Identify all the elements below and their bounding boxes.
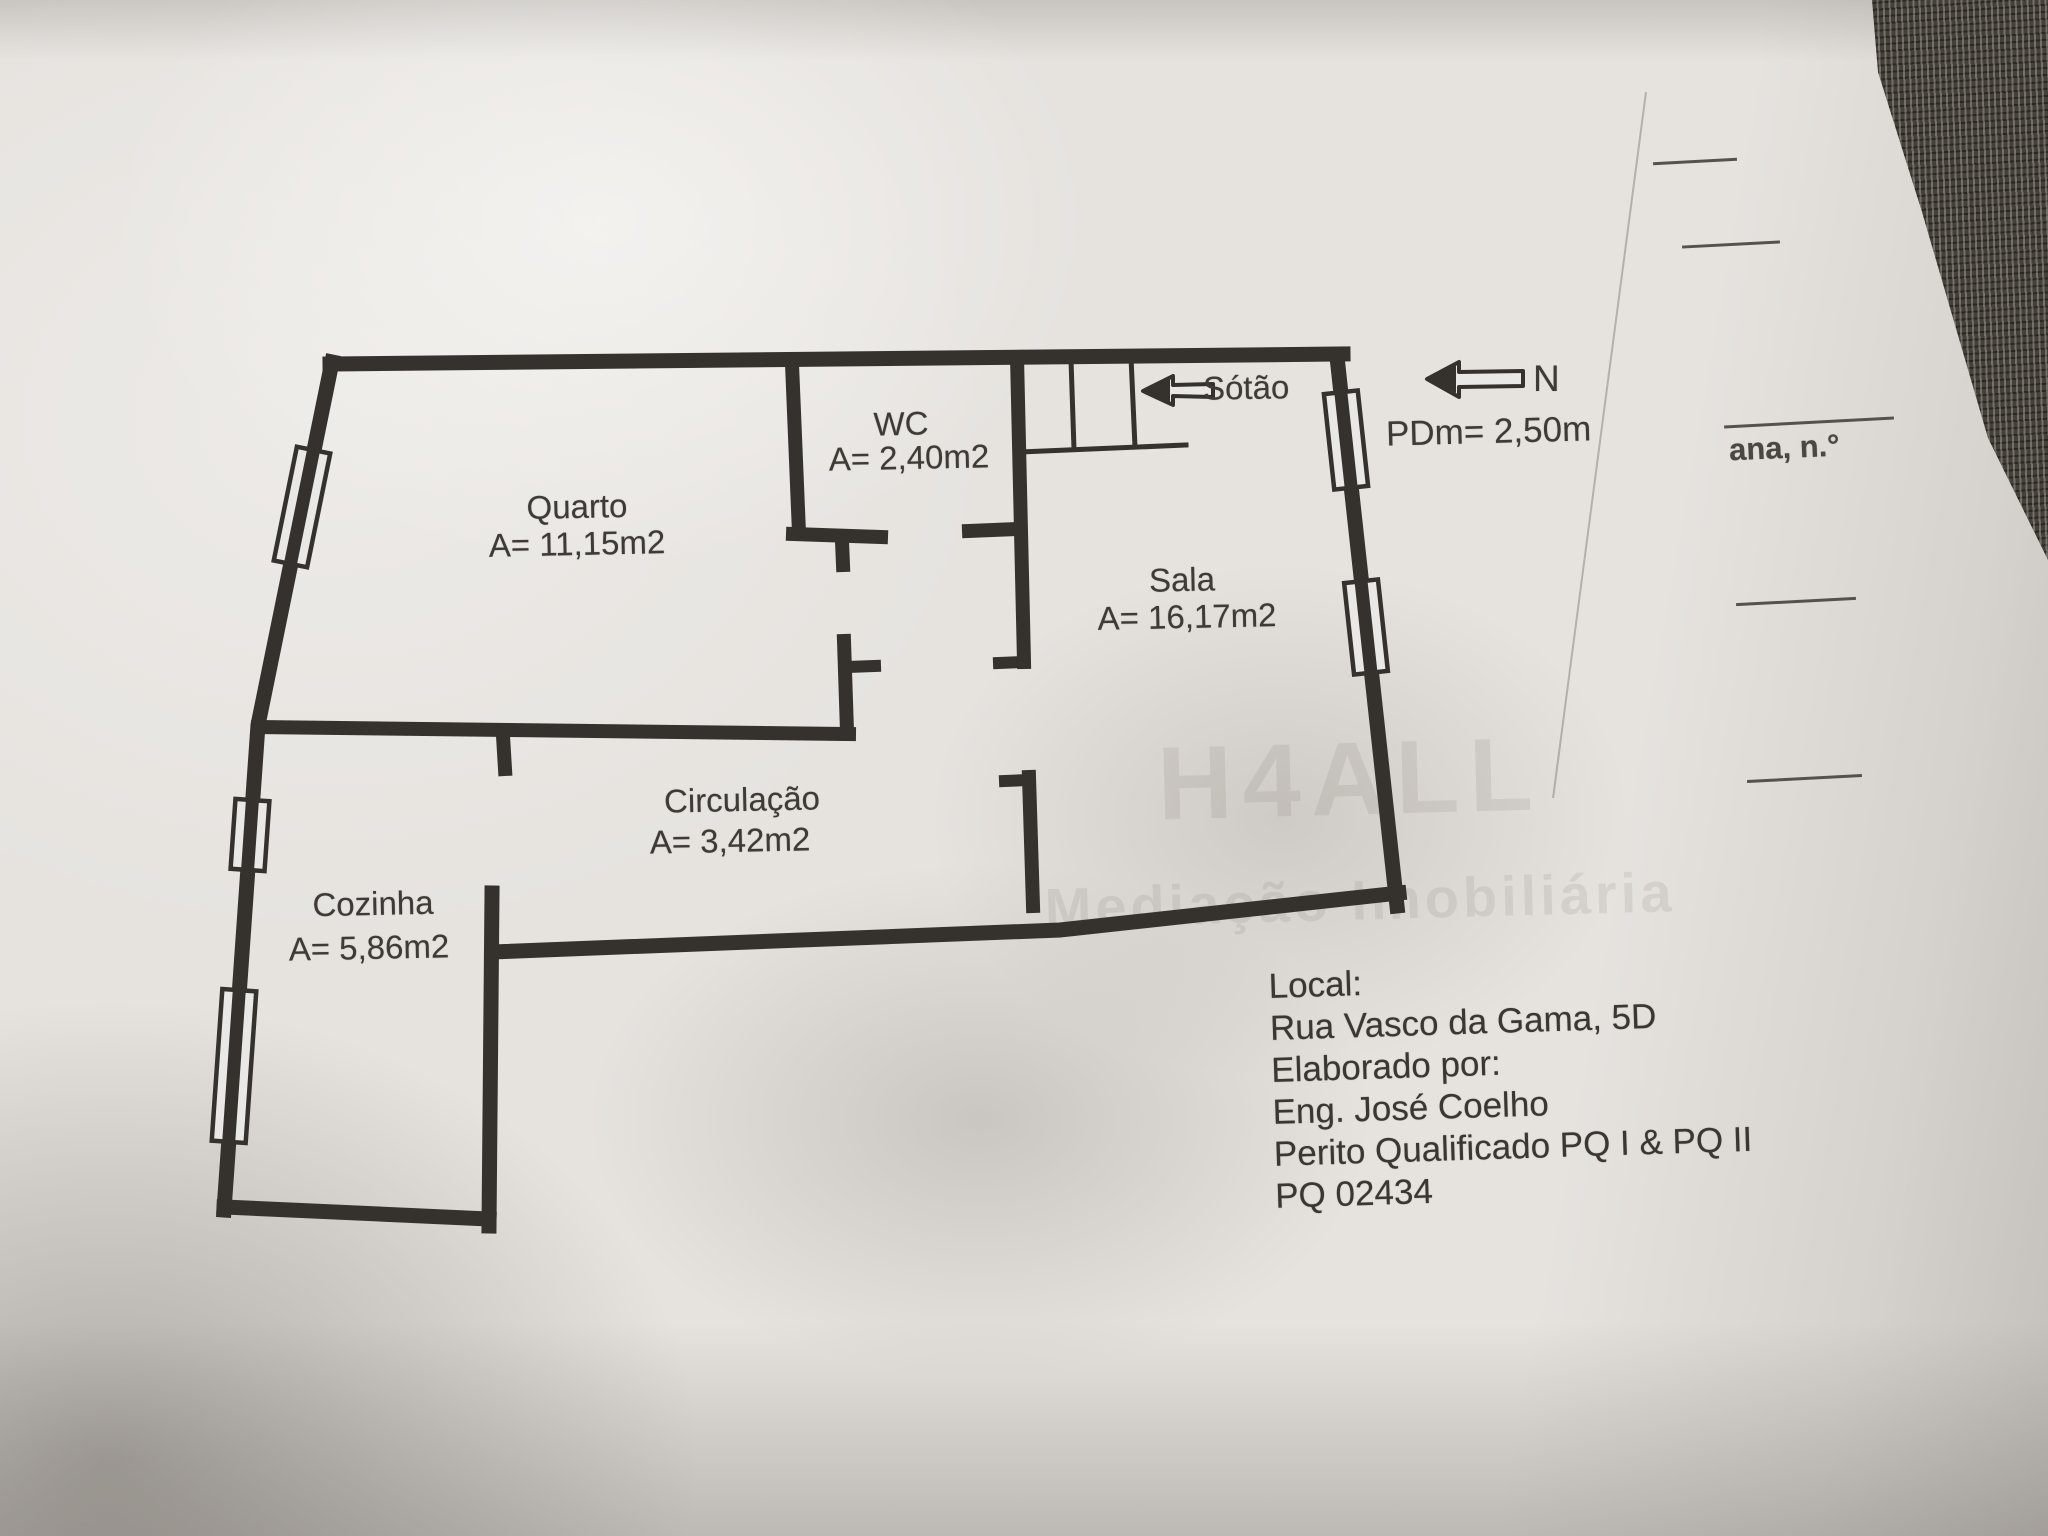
wall-quarto-right: [792, 364, 799, 533]
north-arrow-icon: [1427, 362, 1523, 397]
wall-sala-left-upper: [1017, 357, 1024, 662]
sotao-label: Sótão: [1203, 368, 1290, 407]
north-label: N: [1533, 358, 1560, 400]
wall-cozinha-right: [489, 893, 492, 1226]
wall-wc-bottom-right: [969, 529, 1018, 531]
info-block: Local: Rua Vasco da Gama, 5D Elaborado p…: [1268, 951, 1754, 1218]
door-jamb-sala-bottom: [1005, 780, 1029, 781]
room-label-sala: Sala: [1149, 560, 1216, 599]
floorplan-drawing: [0, 0, 2048, 1536]
window-cozinha-lower: [212, 989, 257, 1143]
room-area-cozinha: A= 5,86m2: [288, 927, 449, 968]
room-label-wc: WC: [873, 404, 929, 443]
window-cozinha-upper: [231, 799, 270, 871]
door-jamb-sala-top: [999, 662, 1023, 663]
wall-quarto-bottom: [258, 727, 849, 734]
stairs-tread-2: [1131, 357, 1135, 447]
ceiling-height-label: PDm= 2,50m: [1386, 409, 1592, 454]
window-quarto-left: [274, 447, 330, 567]
door-jamb-quarto-side: [847, 666, 875, 667]
window-sala-lower: [1344, 579, 1388, 674]
stairs-base-line: [1020, 445, 1186, 452]
room-area-quarto: A= 11,15m2: [488, 523, 665, 565]
wall-sala-left-lower: [1029, 777, 1033, 906]
stairs-tread-1: [1071, 360, 1074, 449]
room-label-quarto: Quarto: [526, 487, 628, 527]
background-page-text: ana, n.°: [1728, 428, 1840, 469]
room-area-circulacao: A= 3,42m2: [649, 820, 810, 861]
wall-bottom-main: [492, 893, 1399, 952]
window-sala-upper: [1324, 390, 1368, 489]
door-jamb-quarto-top: [842, 541, 843, 565]
door-jamb-cozinha: [503, 736, 505, 769]
room-label-cozinha: Cozinha: [312, 884, 434, 925]
wall-quarto-door-lower: [844, 641, 847, 731]
photographed-floorplan-page: H4ALL Mediação Imobiliária: [0, 0, 2048, 1536]
room-area-sala: A= 16,17m2: [1097, 596, 1277, 638]
wall-cozinha-bottom: [224, 1207, 489, 1219]
room-area-wc: A= 2,40m2: [828, 437, 989, 478]
room-label-circulacao: Circulação: [664, 779, 821, 820]
wall-top: [330, 354, 1343, 364]
